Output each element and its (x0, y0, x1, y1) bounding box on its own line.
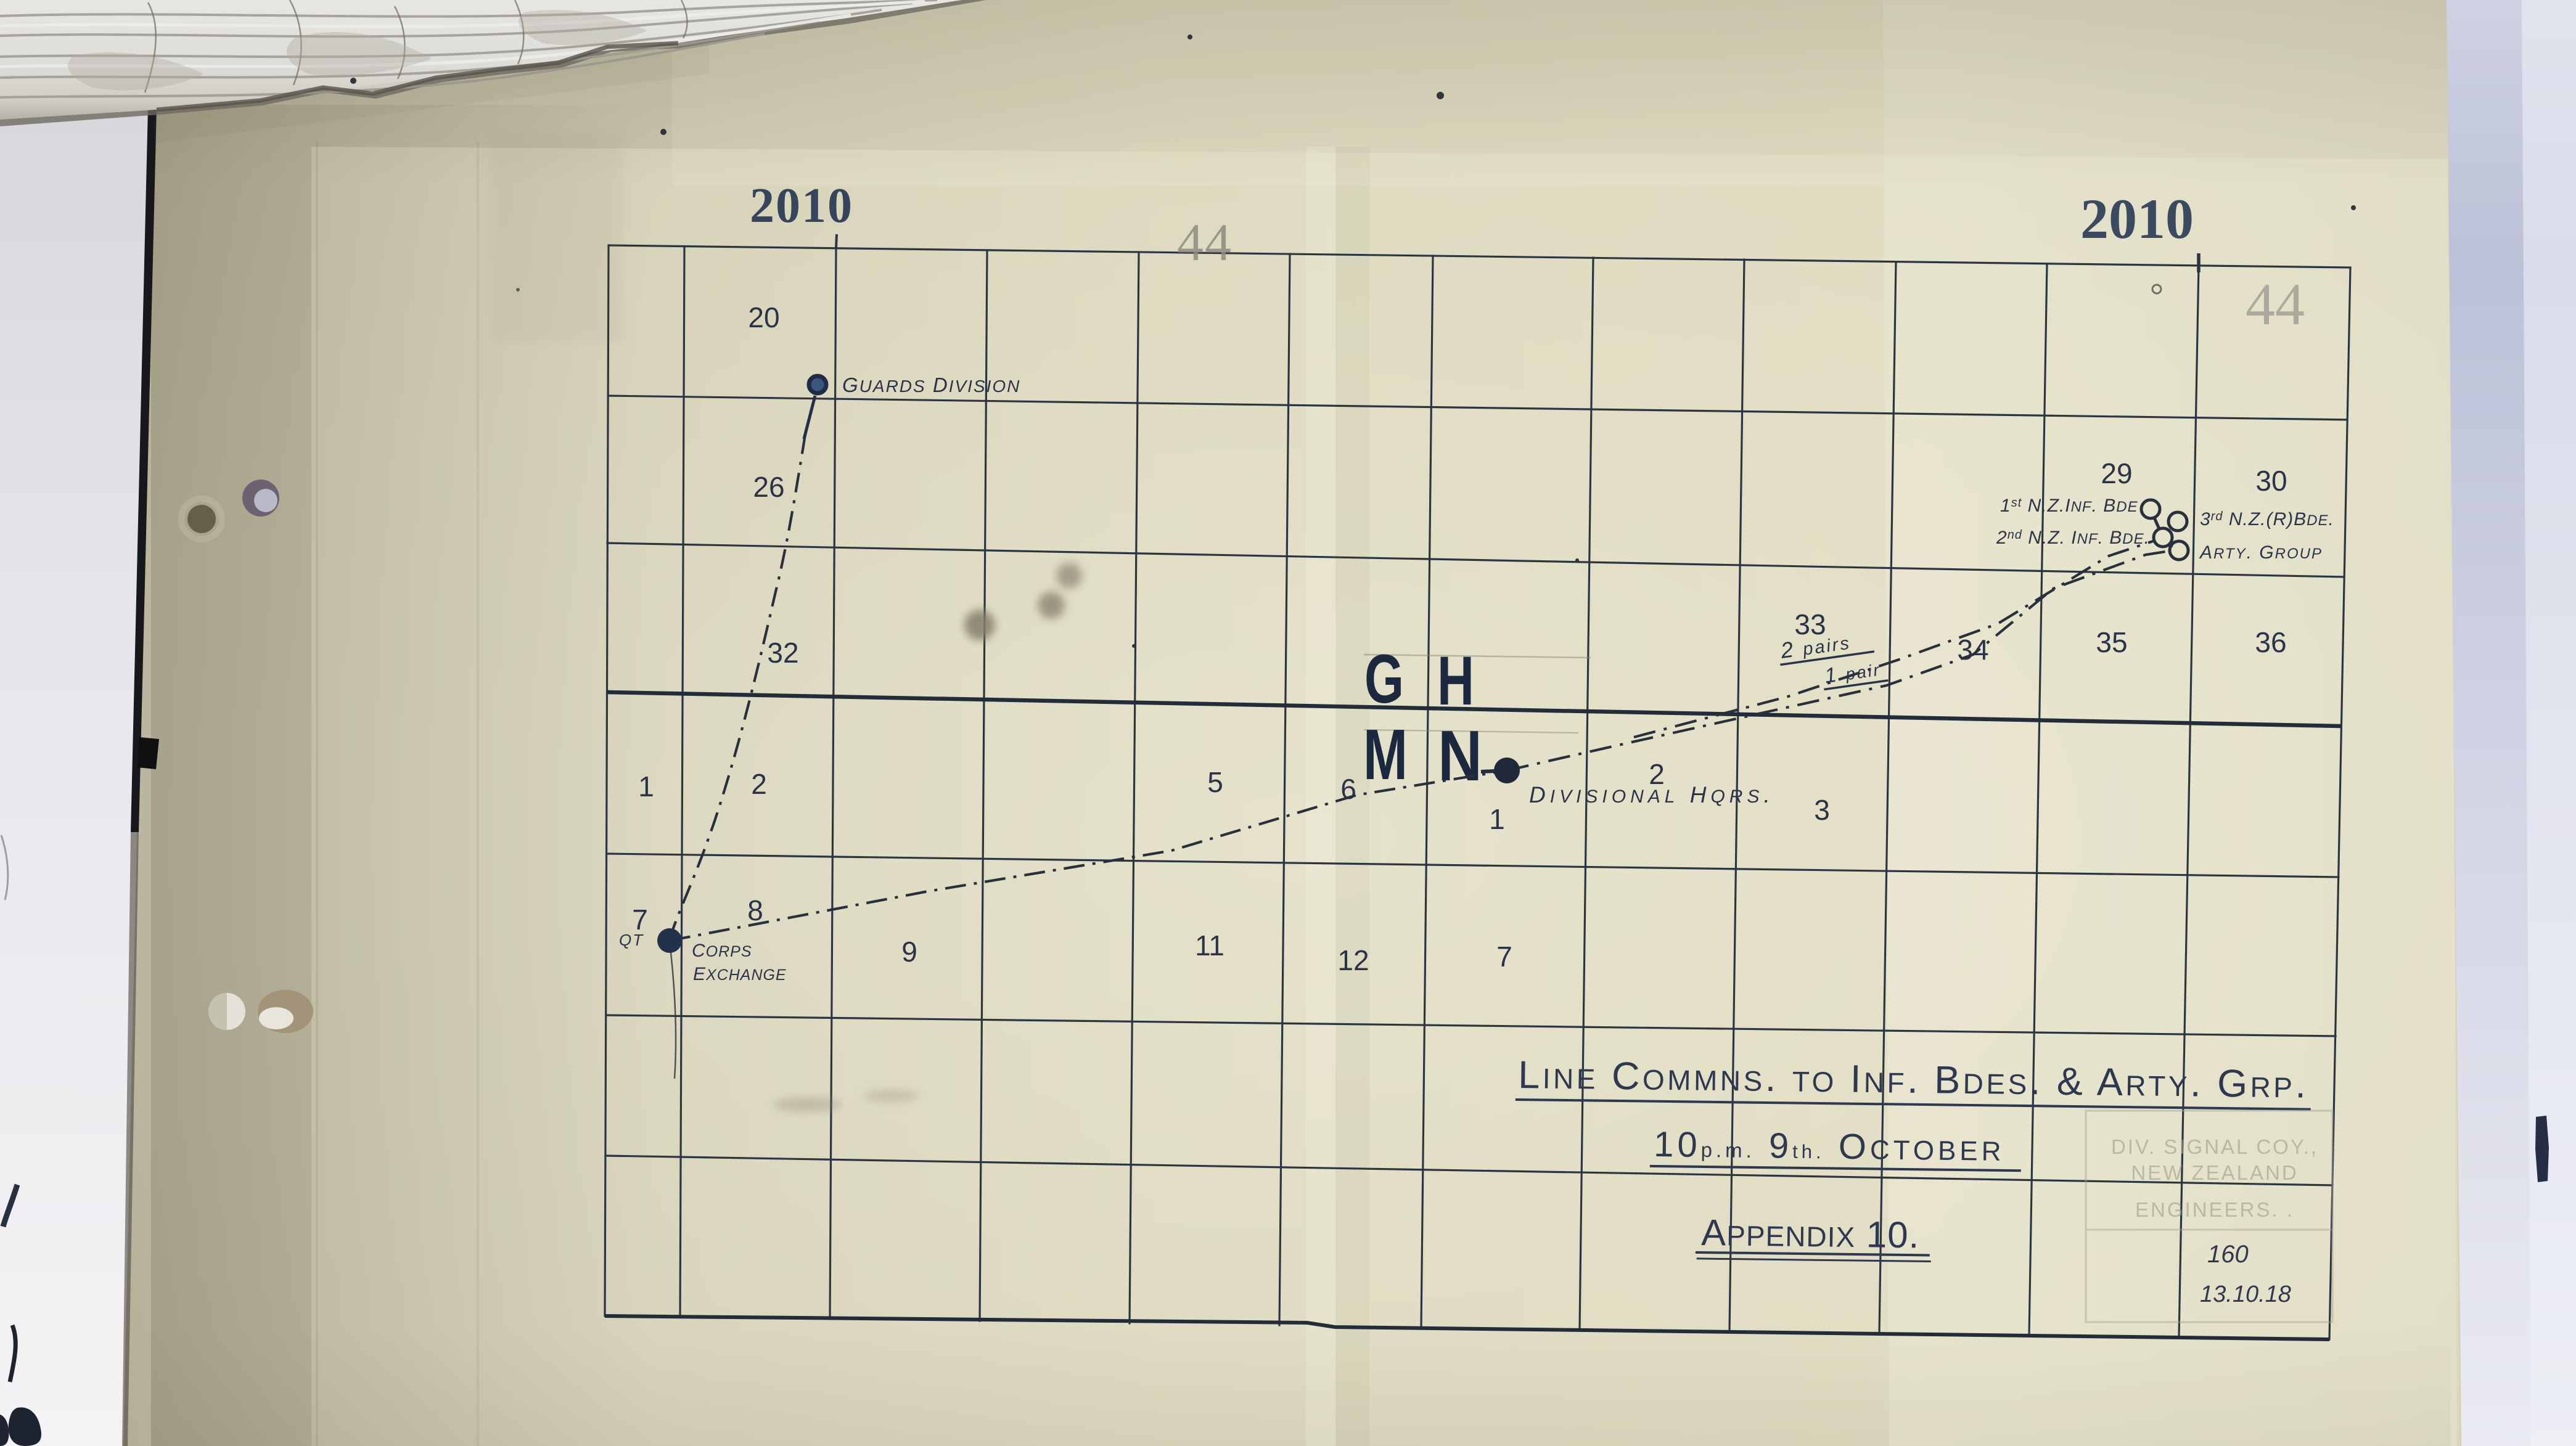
svg-text:36: 36 (2255, 626, 2286, 658)
svg-text:DIVISIONAL HQRS.: DIVISIONAL HQRS. (1529, 782, 1774, 807)
svg-text:13.10.18: 13.10.18 (2200, 1281, 2291, 1307)
svg-text:NEW ZEALAND: NEW ZEALAND (2131, 1161, 2298, 1184)
svg-text:44: 44 (2246, 271, 2305, 337)
svg-text:QT: QT (619, 931, 644, 949)
svg-text:3: 3 (1814, 794, 1830, 826)
svg-text:H: H (1437, 642, 1474, 719)
svg-text:44: 44 (1177, 213, 1233, 272)
svg-text:7: 7 (1496, 941, 1512, 973)
svg-text:2010: 2010 (2080, 187, 2194, 250)
svg-text:11: 11 (1195, 929, 1224, 962)
svg-text:2: 2 (751, 768, 767, 800)
svg-text:1: 1 (1489, 803, 1505, 835)
svg-text:CORPS: CORPS (692, 941, 752, 961)
svg-text:35: 35 (2096, 626, 2127, 658)
svg-text:26: 26 (753, 471, 784, 503)
svg-text:N: N (1438, 716, 1482, 796)
svg-text:8: 8 (747, 894, 763, 926)
svg-text:160: 160 (2207, 1241, 2249, 1268)
svg-text:EXCHANGE: EXCHANGE (693, 964, 787, 984)
svg-text:12: 12 (1337, 944, 1369, 976)
svg-text:5: 5 (1207, 766, 1223, 798)
svg-text:M: M (1363, 714, 1408, 794)
svg-text:9: 9 (901, 936, 917, 968)
svg-text:G: G (1364, 640, 1404, 717)
svg-text:ARTY. GROUP: ARTY. GROUP (2199, 542, 2323, 563)
svg-text:29: 29 (2101, 457, 2132, 489)
svg-text:32: 32 (767, 637, 798, 669)
svg-text:2010: 2010 (750, 179, 853, 233)
svg-text:30: 30 (2255, 465, 2287, 497)
svg-text:34: 34 (1957, 634, 1988, 666)
svg-text:20: 20 (748, 301, 779, 333)
svg-text:1: 1 (638, 770, 654, 803)
svg-text:DIV. SIGNAL COY.,: DIV. SIGNAL COY., (2111, 1135, 2318, 1158)
svg-text:2: 2 (1649, 758, 1665, 790)
svg-text:GUARDS DIVISION: GUARDS DIVISION (842, 374, 1020, 396)
svg-text:ENGINEERS. .: ENGINEERS. . (2135, 1198, 2294, 1221)
